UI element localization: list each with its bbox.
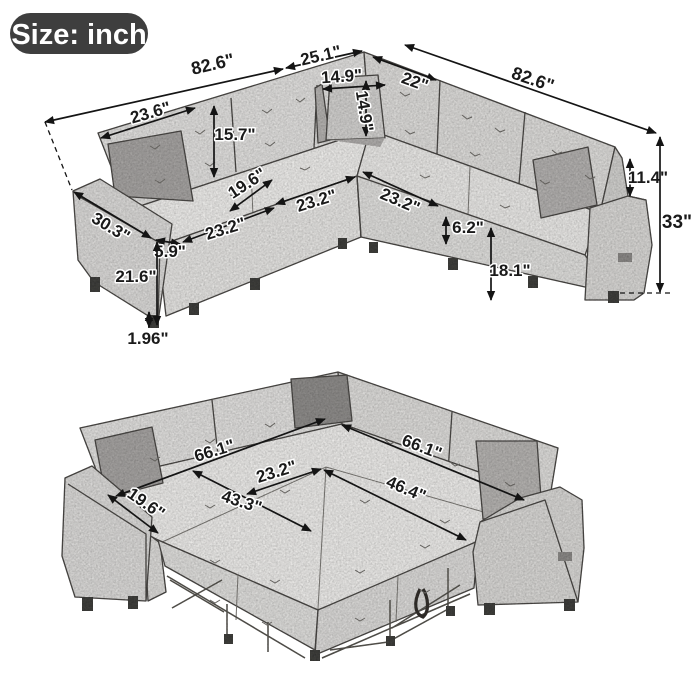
svg-text:5.9": 5.9"	[154, 242, 186, 261]
svg-text:6.2": 6.2"	[452, 218, 484, 237]
svg-text:14.9": 14.9"	[320, 66, 362, 88]
svg-text:33": 33"	[662, 212, 692, 233]
svg-text:1.96": 1.96"	[127, 329, 168, 348]
svg-text:11.4": 11.4"	[628, 168, 668, 187]
svg-text:82.6": 82.6"	[189, 50, 236, 79]
svg-text:82.6": 82.6"	[509, 63, 557, 96]
svg-text:15.7": 15.7"	[214, 125, 255, 144]
svg-text:21.6": 21.6"	[115, 267, 156, 286]
svg-text:Size: inch: Size: inch	[11, 19, 146, 51]
svg-text:18.1": 18.1"	[489, 261, 530, 280]
